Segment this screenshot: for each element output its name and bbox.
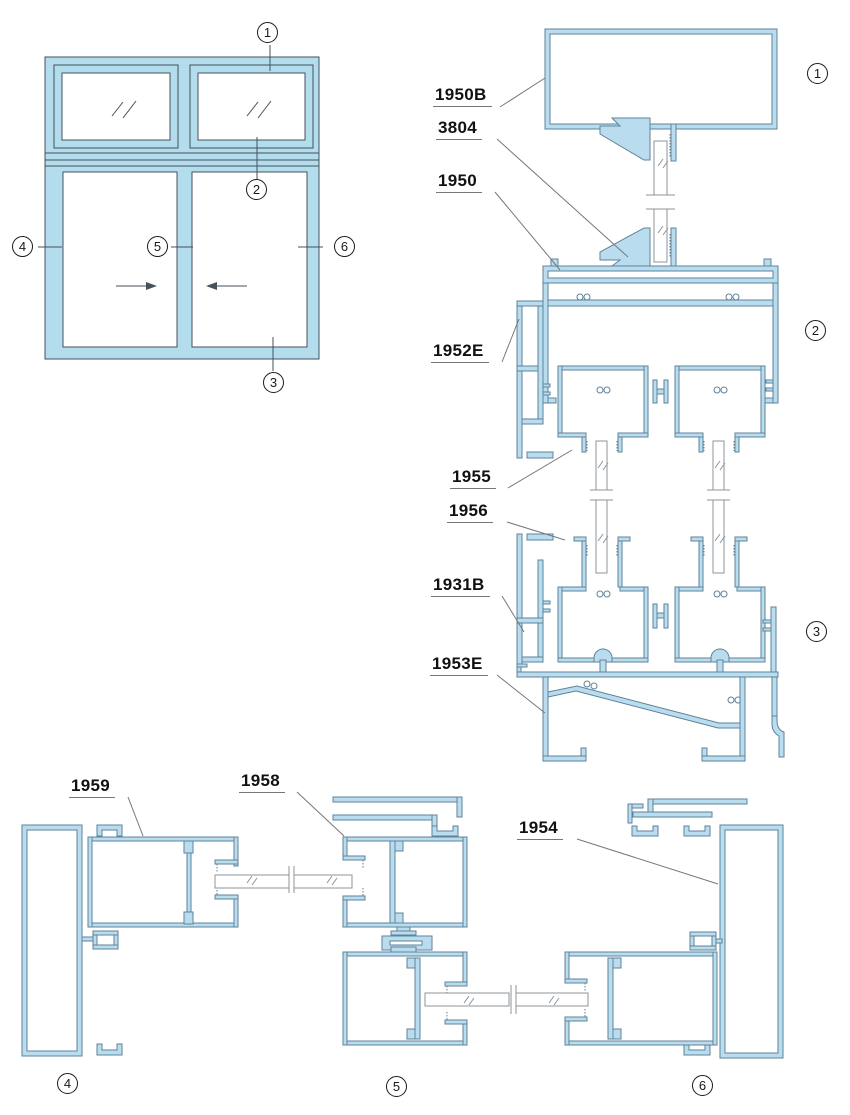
center-interlock [653,380,668,403]
track-shelf [548,300,773,306]
sill-tail [772,716,784,757]
detail-marker-4: 4 [57,1073,78,1094]
part-label-1953E: 1953E [430,654,488,676]
window-elevation [38,45,323,371]
part-label-1950: 1950 [436,171,482,193]
glass-pane [654,209,667,262]
sash-top-left-1955 [558,366,648,452]
glass-run-4-5 [215,866,352,893]
part-label-1952E: 1952E [431,341,489,363]
part-label-3804: 3804 [436,118,482,140]
elevation-marker-5: 5 [147,236,168,257]
part-label-1958: 1958 [239,771,285,793]
profile-1953E [517,664,784,761]
profile-1950 [543,266,778,283]
section-1-head-detail [545,29,777,262]
fixed-glass-right [198,73,305,140]
glass-right [707,441,730,573]
glass-run-5-6 [425,985,588,1014]
head-track-fragment [333,797,462,836]
detail-marker-1: 1 [807,63,828,84]
profile-1950B [545,29,777,129]
sash-top-right-1955 [675,366,765,452]
part-label-1956: 1956 [447,501,493,523]
part-label-1955: 1955 [450,467,496,489]
elevation-marker-2: 2 [246,179,267,200]
section-3-sill-detail [517,534,784,761]
section-6-right-jamb-detail [565,799,783,1058]
section-4-left-jamb-detail [22,825,352,1056]
part-label-1950B: 1950B [433,85,492,107]
window-profile-diagram: 1950B 3804 1950 1952E 1955 1956 1931B 19… [0,0,850,1115]
profile-1954 [720,825,783,1058]
diagram-canvas [0,0,850,1115]
stile-interlock [382,927,432,952]
drain-slope [548,686,745,728]
part-label-1931B: 1931B [431,575,490,597]
glass-pane [654,141,667,195]
detail-marker-6: 6 [692,1075,713,1096]
elevation-marker-6: 6 [334,236,355,257]
elevation-marker-1: 1 [257,22,278,43]
detail-marker-5: 5 [386,1076,407,1097]
glazing-wedge-3804-bottom [600,228,650,266]
section-2-transom-detail [517,228,778,573]
profile-1958-upper [343,837,467,927]
elevation-marker-3: 3 [263,372,284,393]
elevation-marker-4: 4 [12,236,33,257]
detail-marker-3: 3 [806,621,827,642]
fixed-glass-left [62,73,170,140]
jamb-interlock [690,932,722,950]
part-label-1959: 1959 [69,776,115,798]
sliding-panel-left [63,172,177,347]
glass-left [590,441,613,573]
sliding-panel-right [192,172,307,347]
center-interlock [653,604,668,628]
jamb-frame [22,825,82,1056]
glazing-leg [671,124,676,161]
part-label-1954: 1954 [517,818,563,840]
detail-marker-2: 2 [805,320,826,341]
jamb-interlock [82,931,118,949]
profile-1931B [517,534,553,664]
